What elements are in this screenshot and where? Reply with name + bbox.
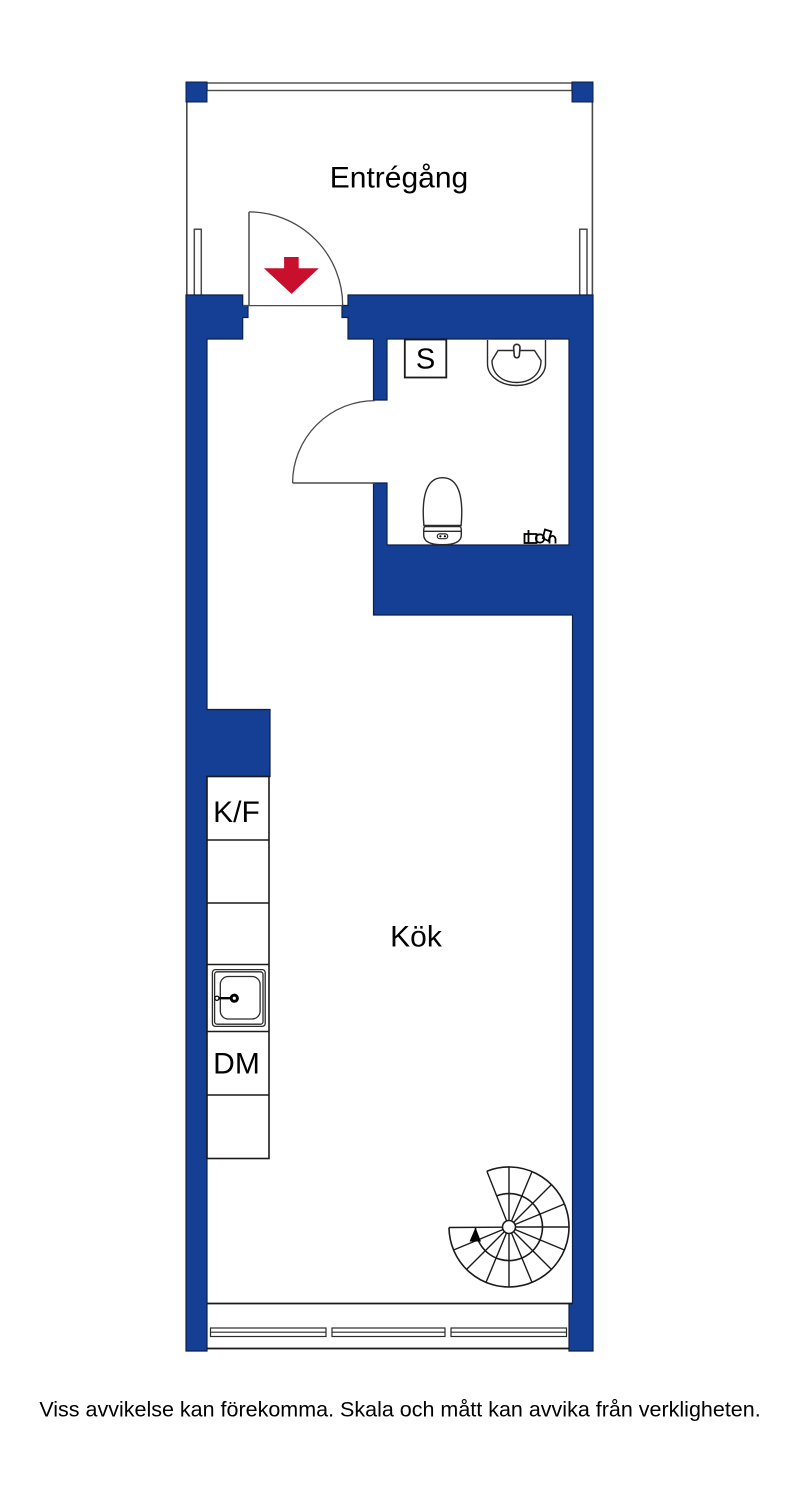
svg-text:S: S — [416, 344, 435, 376]
svg-text:K/F: K/F — [213, 796, 260, 829]
svg-text:Viss avvikelse kan förekomma.: Viss avvikelse kan förekomma. Skala och … — [39, 1397, 760, 1421]
svg-text:Entrégång: Entrégång — [330, 162, 468, 195]
svg-text:DM: DM — [213, 1048, 260, 1081]
svg-text:Kök: Kök — [390, 921, 443, 954]
